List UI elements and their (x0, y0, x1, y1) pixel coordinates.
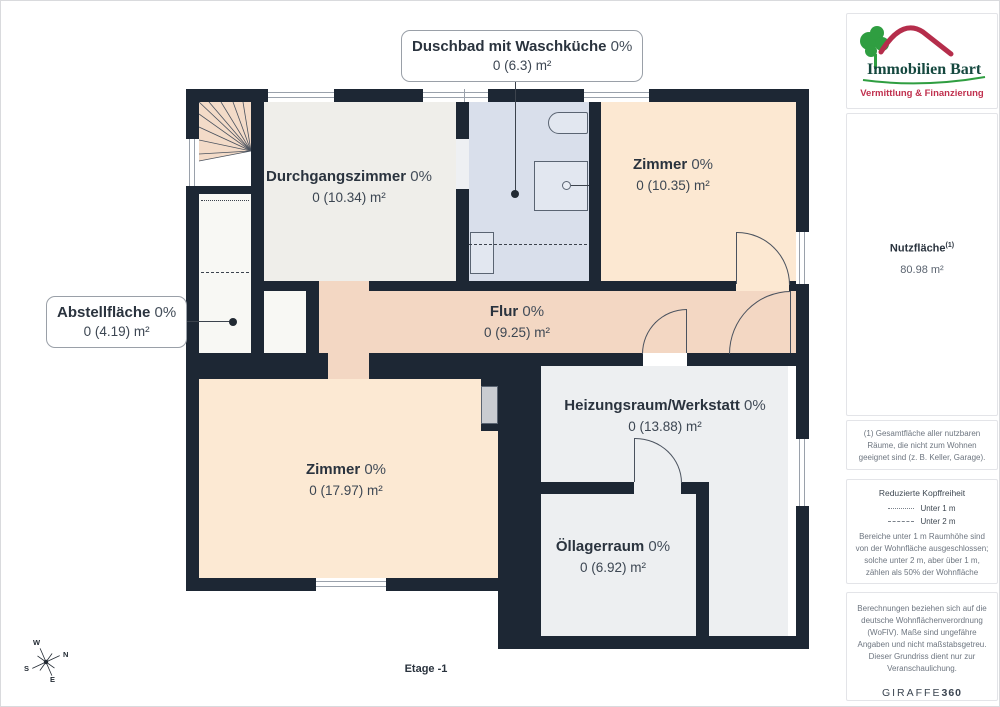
wall-segment (498, 636, 809, 649)
callout-leader (515, 80, 516, 192)
window (584, 89, 649, 102)
callout-dot (511, 190, 519, 198)
svg-text:Immobilien Bart: Immobilien Bart (867, 61, 982, 78)
nutzflaeche-card: Nutzfläche(1) 80.98 m² (846, 113, 998, 416)
nutzflaeche-sup: (1) (946, 242, 955, 249)
compass-icon: N W S E (17, 627, 77, 697)
window (423, 89, 488, 102)
legend-item-under-2m: Unter 2 m (852, 517, 992, 526)
room-name: Abstellfläche (57, 304, 150, 321)
room-label-oellagerraum: Öllagerraum 0% 0 (6.92) m² (513, 536, 713, 577)
legend-card: Reduzierte Kopffreiheit Unter 1 m Unter … (846, 479, 998, 584)
svg-text:Vermittlung & Finanzierung: Vermittlung & Finanzierung (860, 88, 984, 99)
wall-segment (498, 353, 541, 649)
room-vestibule (264, 291, 306, 353)
room-area: 0 (4.19) m² (57, 323, 176, 342)
room-heizungsraum-corridor (709, 484, 788, 636)
wall-segment (306, 286, 319, 353)
room-label-zimmer-top: Zimmer 0% 0 (10.35) m² (573, 154, 773, 195)
room-label-zimmer-bottom: Zimmer 0% 0 (17.97) m² (246, 459, 446, 500)
footnote-card: (1) Gesamtfläche aller nutzbaren Räume, … (846, 420, 998, 470)
wall-segment (498, 353, 643, 366)
flur-passage-bottom (328, 353, 369, 379)
footnote-text: (1) Gesamtfläche aller nutzbaren Räume, … (853, 428, 991, 464)
headroom-dashed-line (201, 272, 249, 273)
window (186, 139, 199, 186)
callout-abstellflaeche: Abstellfläche 0% 0 (4.19) m² (46, 296, 187, 348)
legend-title: Reduzierte Kopffreiheit (852, 488, 992, 498)
wall-segment (369, 281, 456, 291)
svg-text:W: W (33, 638, 41, 647)
giraffe360-logo: GIRAFFE360 (853, 687, 991, 699)
chimney-cap (481, 424, 498, 431)
bathtub-icon (548, 112, 588, 134)
room-abstellflaeche (199, 194, 251, 353)
wall-segment (251, 102, 264, 353)
window (268, 89, 334, 102)
room-area: 0 (6.3) m² (412, 57, 632, 76)
room-percent: 0% (155, 304, 177, 321)
dotted-line-icon (888, 508, 914, 509)
logo-card: Immobilien Bart Vermittlung & Finanzieru… (846, 13, 998, 109)
door-opening (456, 139, 469, 189)
room-label-durchgangszimmer: Durchgangszimmer 0% 0 (10.34) m² (249, 166, 449, 207)
chimney-cap (481, 379, 498, 386)
sink-icon (470, 232, 494, 274)
dashed-line-icon (888, 521, 914, 522)
wall-segment (456, 281, 736, 291)
nutzflaeche-label: Nutzfläche (890, 243, 946, 255)
svg-text:N: N (63, 650, 68, 659)
callout-dot (229, 318, 237, 326)
window (796, 439, 809, 506)
wall-segment (687, 353, 796, 366)
wall-segment (541, 482, 634, 494)
callout-duschbad: Duschbad mit Waschküche 0% 0 (6.3) m² (401, 30, 643, 82)
roof-icon (881, 28, 951, 54)
wall-segment (789, 281, 796, 291)
door-opening (634, 482, 681, 494)
disclaimer-card: Berechnungen beziehen sich auf die deuts… (846, 592, 998, 701)
headroom-dotted-line (201, 200, 249, 201)
wall-segment (796, 89, 809, 649)
headroom-dashed-line (469, 244, 587, 245)
immobilien-bart-logo: Immobilien Bart Vermittlung & Finanzieru… (847, 14, 997, 108)
floorplan-page: Duschbad mit Waschküche 0% 0 (6.3) m² Ab… (0, 0, 1000, 707)
room-label-flur: Flur 0% 0 (9.25) m² (417, 301, 617, 342)
room-name: Duschbad mit Waschküche (412, 38, 607, 55)
legend-note: Bereiche unter 1 m Raumhöhe sind von der… (852, 531, 992, 579)
floor-label: Etage -1 (366, 663, 486, 675)
room-label-heizungsraum: Heizungsraum/Werkstatt 0% 0 (13.88) m² (545, 395, 785, 436)
legend-item-under-1m: Unter 1 m (852, 504, 992, 513)
nutzflaeche-value: 80.98 m² (847, 264, 997, 276)
chimney (481, 386, 498, 424)
stairs-icon (199, 102, 251, 186)
svg-text:E: E (50, 675, 55, 684)
room-flur-passage-top (319, 281, 369, 291)
wall-segment (456, 102, 469, 139)
room-percent: 0% (611, 38, 633, 55)
window (316, 578, 386, 591)
shower-drain-icon (562, 181, 571, 190)
svg-text:S: S (24, 664, 29, 673)
wall-segment (456, 189, 469, 281)
window (796, 232, 809, 284)
disclaimer-text: Berechnungen beziehen sich auf die deuts… (853, 603, 991, 675)
